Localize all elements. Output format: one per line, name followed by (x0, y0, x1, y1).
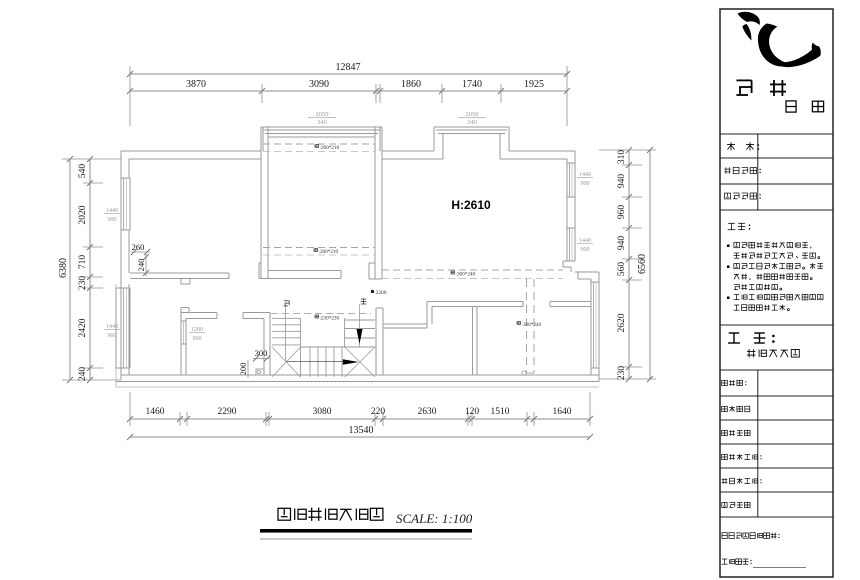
svg-text:710: 710 (78, 255, 88, 270)
svg-text::230*230: :230*230 (320, 316, 340, 322)
svg-text:900: 900 (581, 247, 590, 253)
svg-text:3090: 3090 (309, 79, 329, 90)
svg-text:340: 340 (317, 119, 327, 126)
svg-text:1860: 1860 (401, 79, 421, 90)
svg-text:1440: 1440 (579, 238, 591, 244)
svg-text::300*240: :300*240 (522, 322, 542, 328)
svg-text:240: 240 (78, 367, 88, 382)
svg-text:560: 560 (617, 262, 627, 277)
svg-text:940: 940 (617, 236, 627, 251)
svg-text:540: 540 (78, 164, 88, 179)
svg-text:6560: 6560 (637, 254, 648, 274)
svg-text::300*240: :300*240 (456, 272, 476, 278)
svg-text:200: 200 (238, 363, 248, 376)
svg-text:900: 900 (108, 333, 117, 339)
svg-text:1200: 1200 (191, 327, 203, 333)
svg-text:340: 340 (467, 119, 477, 126)
svg-text:6380: 6380 (58, 258, 69, 278)
svg-text:12847: 12847 (336, 62, 361, 73)
svg-text:2630: 2630 (418, 407, 437, 417)
svg-text:2050: 2050 (316, 111, 329, 118)
svg-text:220: 220 (371, 407, 386, 417)
svg-text:H:2610: H:2610 (451, 198, 491, 212)
svg-text::260*210: :260*210 (320, 145, 340, 151)
svg-text:1460: 1460 (146, 407, 165, 417)
svg-text:13540: 13540 (349, 425, 374, 436)
svg-text:2290: 2290 (218, 407, 237, 417)
svg-text:940: 940 (617, 174, 627, 189)
svg-text:900: 900 (108, 217, 117, 223)
svg-text:260: 260 (132, 242, 145, 252)
svg-text:900: 900 (193, 336, 202, 342)
svg-text:2050: 2050 (466, 111, 479, 118)
svg-text:1640: 1640 (553, 407, 572, 417)
svg-text:230: 230 (617, 366, 627, 381)
svg-text:3080: 3080 (313, 407, 332, 417)
svg-text:120: 120 (465, 407, 480, 417)
svg-text:2260: 2260 (376, 290, 387, 296)
svg-text:2420: 2420 (78, 318, 88, 337)
svg-text:230: 230 (78, 276, 88, 291)
svg-text:900: 900 (581, 181, 590, 187)
svg-text:1440: 1440 (106, 208, 118, 214)
svg-text:3870: 3870 (186, 79, 206, 90)
svg-text:300: 300 (255, 348, 268, 358)
svg-text:310: 310 (617, 150, 627, 165)
svg-text:960: 960 (617, 205, 627, 220)
svg-text:1925: 1925 (524, 79, 544, 90)
svg-text:1740: 1740 (462, 79, 482, 90)
svg-text:240: 240 (136, 259, 146, 272)
svg-text:1440: 1440 (579, 172, 591, 178)
svg-text:1510: 1510 (491, 407, 510, 417)
svg-text::260*210: :260*210 (319, 249, 339, 255)
svg-text:2020: 2020 (78, 205, 88, 224)
svg-text:SCALE: 1:100: SCALE: 1:100 (396, 511, 473, 526)
svg-text:1440: 1440 (106, 324, 118, 330)
svg-text:2620: 2620 (617, 313, 627, 332)
